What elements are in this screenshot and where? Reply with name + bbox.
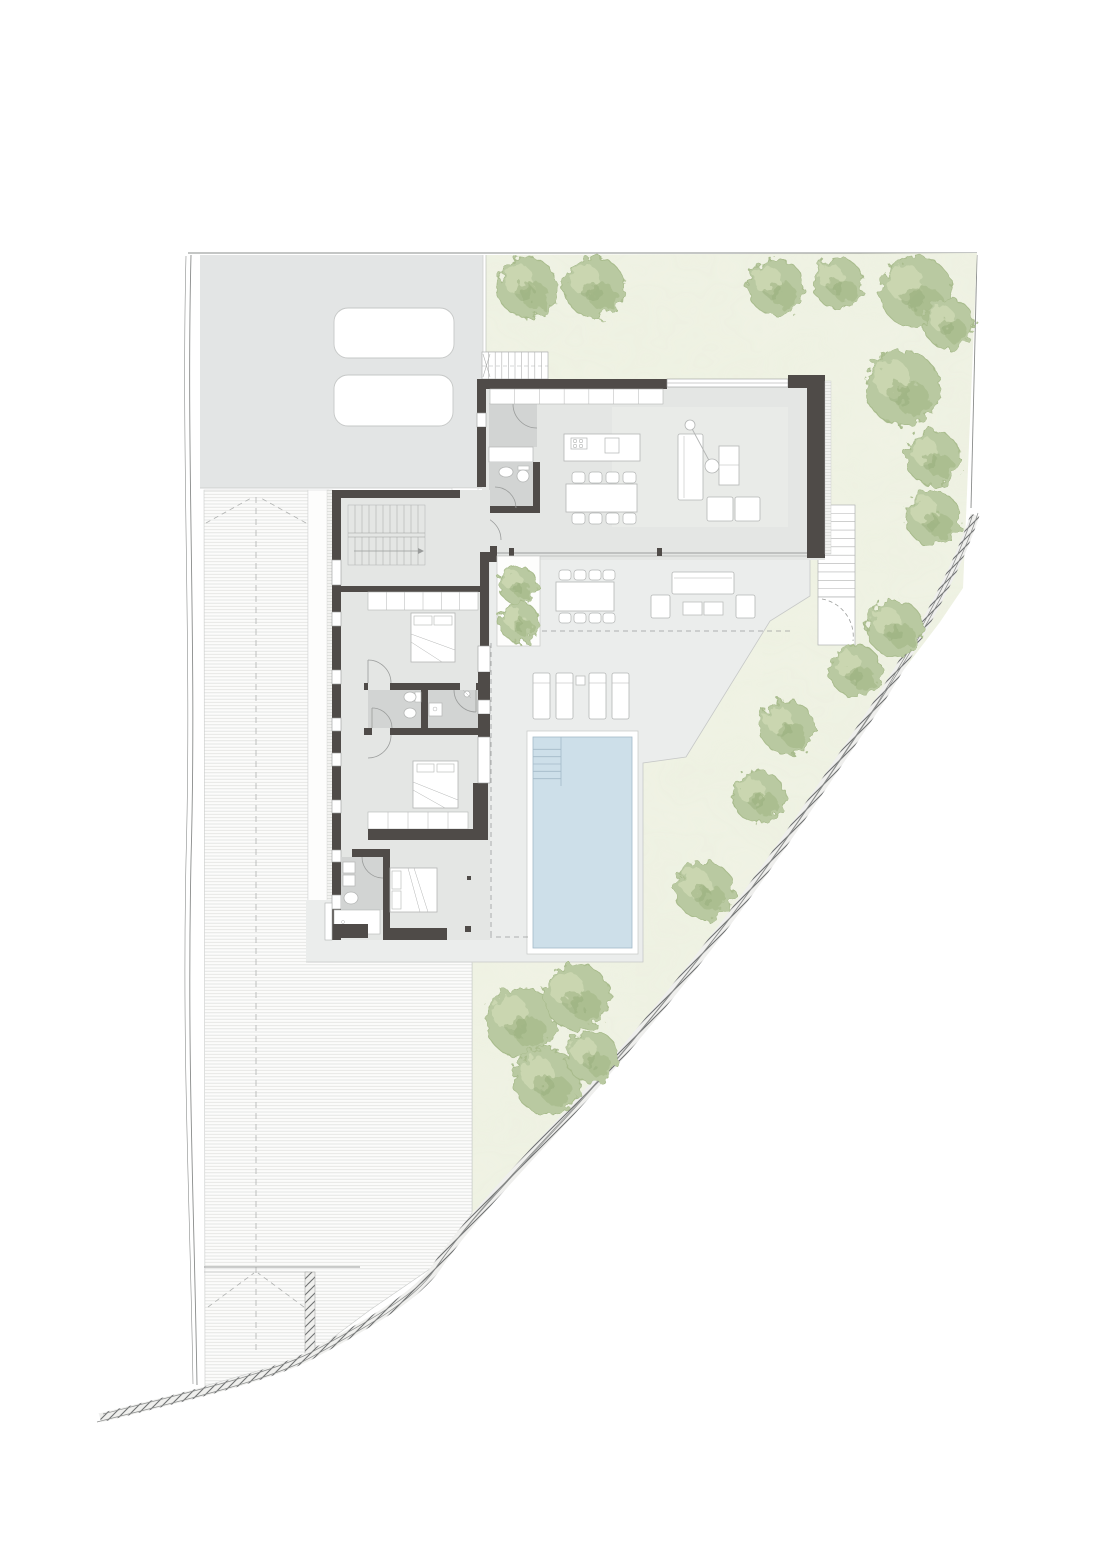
dining-chair — [572, 472, 585, 483]
window-west — [332, 612, 341, 626]
tree-core — [511, 619, 523, 631]
coffee-table — [704, 602, 723, 615]
site-plan-drawing — [0, 0, 1100, 1557]
wall-cladding-strip — [325, 903, 332, 940]
tree-core — [902, 287, 924, 309]
tree — [924, 299, 974, 349]
tree-core — [507, 1017, 528, 1038]
window-west — [477, 413, 486, 427]
wall-bedroom1-north — [341, 586, 482, 592]
toilet — [404, 692, 416, 702]
tree-core — [828, 279, 843, 294]
outdoor-chair — [559, 613, 571, 623]
vestibule-floor — [489, 403, 537, 447]
dining-table — [566, 484, 637, 512]
bed-pillow — [434, 616, 452, 625]
wall-bedroom2-south — [368, 829, 488, 840]
wall-north — [482, 379, 667, 389]
dining-chair — [623, 472, 636, 483]
wall-wc-east — [533, 462, 540, 508]
ottoman — [707, 497, 733, 521]
outdoor-chair — [589, 613, 601, 623]
tree-core — [922, 454, 938, 470]
dining-chair — [589, 472, 602, 483]
window-west — [332, 718, 341, 731]
wall-east — [478, 714, 490, 737]
stone-wall — [305, 1272, 315, 1356]
wall-bath-south — [390, 728, 482, 735]
ottoman — [735, 497, 760, 521]
outdoor-chair — [559, 570, 571, 580]
floor-lamp-shade — [705, 459, 719, 473]
planter-tree — [499, 602, 539, 642]
wall-planter-side — [480, 562, 489, 646]
sofa — [678, 434, 703, 500]
dining-chair — [572, 513, 585, 524]
window-east — [478, 737, 490, 783]
wall-bath-south — [364, 728, 372, 735]
wall-suite-south — [383, 928, 447, 940]
tree-core — [884, 624, 901, 641]
wall-bath-north — [364, 683, 368, 690]
bed-pillow — [392, 871, 401, 889]
wall-west — [477, 379, 486, 413]
window-west — [332, 753, 341, 766]
wall-east-cladding — [825, 381, 831, 554]
tree-core — [564, 992, 584, 1012]
window-west — [332, 800, 341, 813]
cooktop — [571, 438, 587, 449]
tree-core — [692, 886, 709, 903]
driveway — [200, 255, 483, 488]
ensuite-sink — [343, 875, 355, 886]
tree-core — [846, 667, 862, 683]
tree — [867, 600, 923, 656]
outdoor-chair — [574, 570, 586, 580]
dining-chair — [589, 513, 602, 524]
north-sideboard — [490, 389, 663, 404]
tree — [748, 259, 804, 315]
tree-core — [749, 793, 765, 809]
outdoor-chair — [589, 570, 601, 580]
driveway-surface — [200, 255, 483, 488]
tree-core — [765, 283, 782, 300]
coffee-table — [683, 602, 702, 615]
outdoor-armchair — [651, 595, 670, 618]
wc-toilet — [517, 470, 529, 482]
wc-sink — [499, 467, 513, 477]
sun-lounger — [533, 673, 550, 719]
stair-landing — [818, 597, 855, 645]
tree — [866, 351, 940, 425]
architectural-site-plan — [0, 0, 1100, 1557]
tree — [906, 431, 960, 485]
outdoor-chair — [574, 613, 586, 623]
outdoor-armchair — [736, 595, 755, 618]
tree — [760, 700, 814, 754]
tree-core — [515, 283, 533, 301]
tree — [906, 491, 960, 545]
tree-core — [534, 1076, 554, 1096]
parked-car — [334, 375, 453, 426]
planter-tree — [499, 566, 537, 604]
side-walkway — [308, 490, 329, 962]
sun-lounger — [612, 673, 629, 719]
tree — [497, 257, 557, 317]
tree-core — [922, 514, 938, 530]
swimming-pool — [533, 737, 632, 948]
window-east — [478, 700, 490, 714]
wc-floor — [489, 462, 537, 508]
terrace-column — [467, 876, 471, 880]
tree — [675, 861, 733, 919]
tree — [830, 645, 882, 697]
tree-core — [510, 582, 521, 593]
wall-wing-north — [332, 490, 460, 498]
wall-wc-south — [489, 506, 540, 513]
facade-post — [509, 548, 514, 556]
wall-east-corner — [473, 783, 488, 830]
wall-bath-divider — [421, 690, 428, 728]
bed-pillow — [392, 891, 401, 909]
bidet — [404, 708, 416, 718]
wall-east — [478, 672, 490, 700]
dining-chair — [623, 513, 636, 524]
outdoor-chair — [603, 613, 615, 623]
main-level — [452, 375, 831, 560]
window-west — [332, 560, 341, 585]
staircase — [348, 505, 425, 565]
window-west — [332, 895, 341, 909]
window-west — [332, 670, 341, 684]
bed-pillow — [414, 616, 432, 625]
tree-core — [888, 382, 910, 404]
tree-core — [582, 1053, 598, 1069]
wall-suite-southwest — [332, 924, 368, 938]
facade-post — [657, 548, 662, 556]
tree-core — [582, 283, 600, 301]
wardrobe — [368, 812, 468, 829]
sun-lounger — [556, 673, 573, 719]
tree — [564, 257, 624, 317]
bed-pillow — [417, 764, 434, 772]
wall-suite-east — [383, 855, 390, 937]
wall-west — [477, 427, 486, 487]
terrace-column — [465, 926, 471, 932]
floor-lamp-base — [685, 420, 695, 430]
parked-car — [334, 308, 454, 358]
wall-bath-north — [390, 683, 460, 690]
tree-core — [776, 723, 792, 739]
outdoor-dining-table — [556, 582, 614, 611]
entry-bench — [489, 447, 533, 462]
bed-pillow — [437, 764, 454, 772]
dining-chair — [606, 472, 619, 483]
tree-core — [939, 320, 954, 335]
wc-cistern — [518, 466, 529, 470]
window-east — [478, 646, 490, 672]
dining-chair — [606, 513, 619, 524]
tree — [566, 1031, 618, 1083]
tree — [544, 964, 610, 1030]
tree — [733, 771, 785, 823]
tree — [813, 258, 863, 308]
ensuite-toilet — [344, 892, 358, 904]
window-west — [332, 850, 341, 862]
sun-lounger — [589, 673, 606, 719]
side-table — [719, 446, 739, 485]
outdoor-sofa — [672, 572, 734, 594]
kitchen-sink — [605, 438, 619, 453]
outdoor-chair — [603, 570, 615, 580]
ensuite-sink — [343, 862, 355, 873]
bath-sink — [429, 703, 442, 716]
wall-east — [807, 377, 825, 558]
side-table — [576, 676, 585, 685]
wall-planter-head — [480, 552, 497, 562]
